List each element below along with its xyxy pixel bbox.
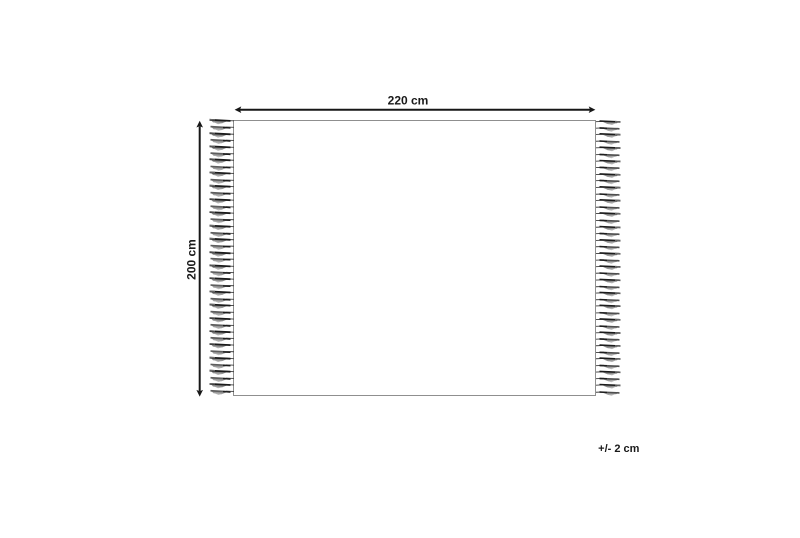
svg-text:+/- 2 cm: +/- 2 cm [598, 443, 639, 455]
svg-text:220 cm: 220 cm [388, 93, 429, 107]
svg-text:200 cm: 200 cm [184, 239, 198, 280]
